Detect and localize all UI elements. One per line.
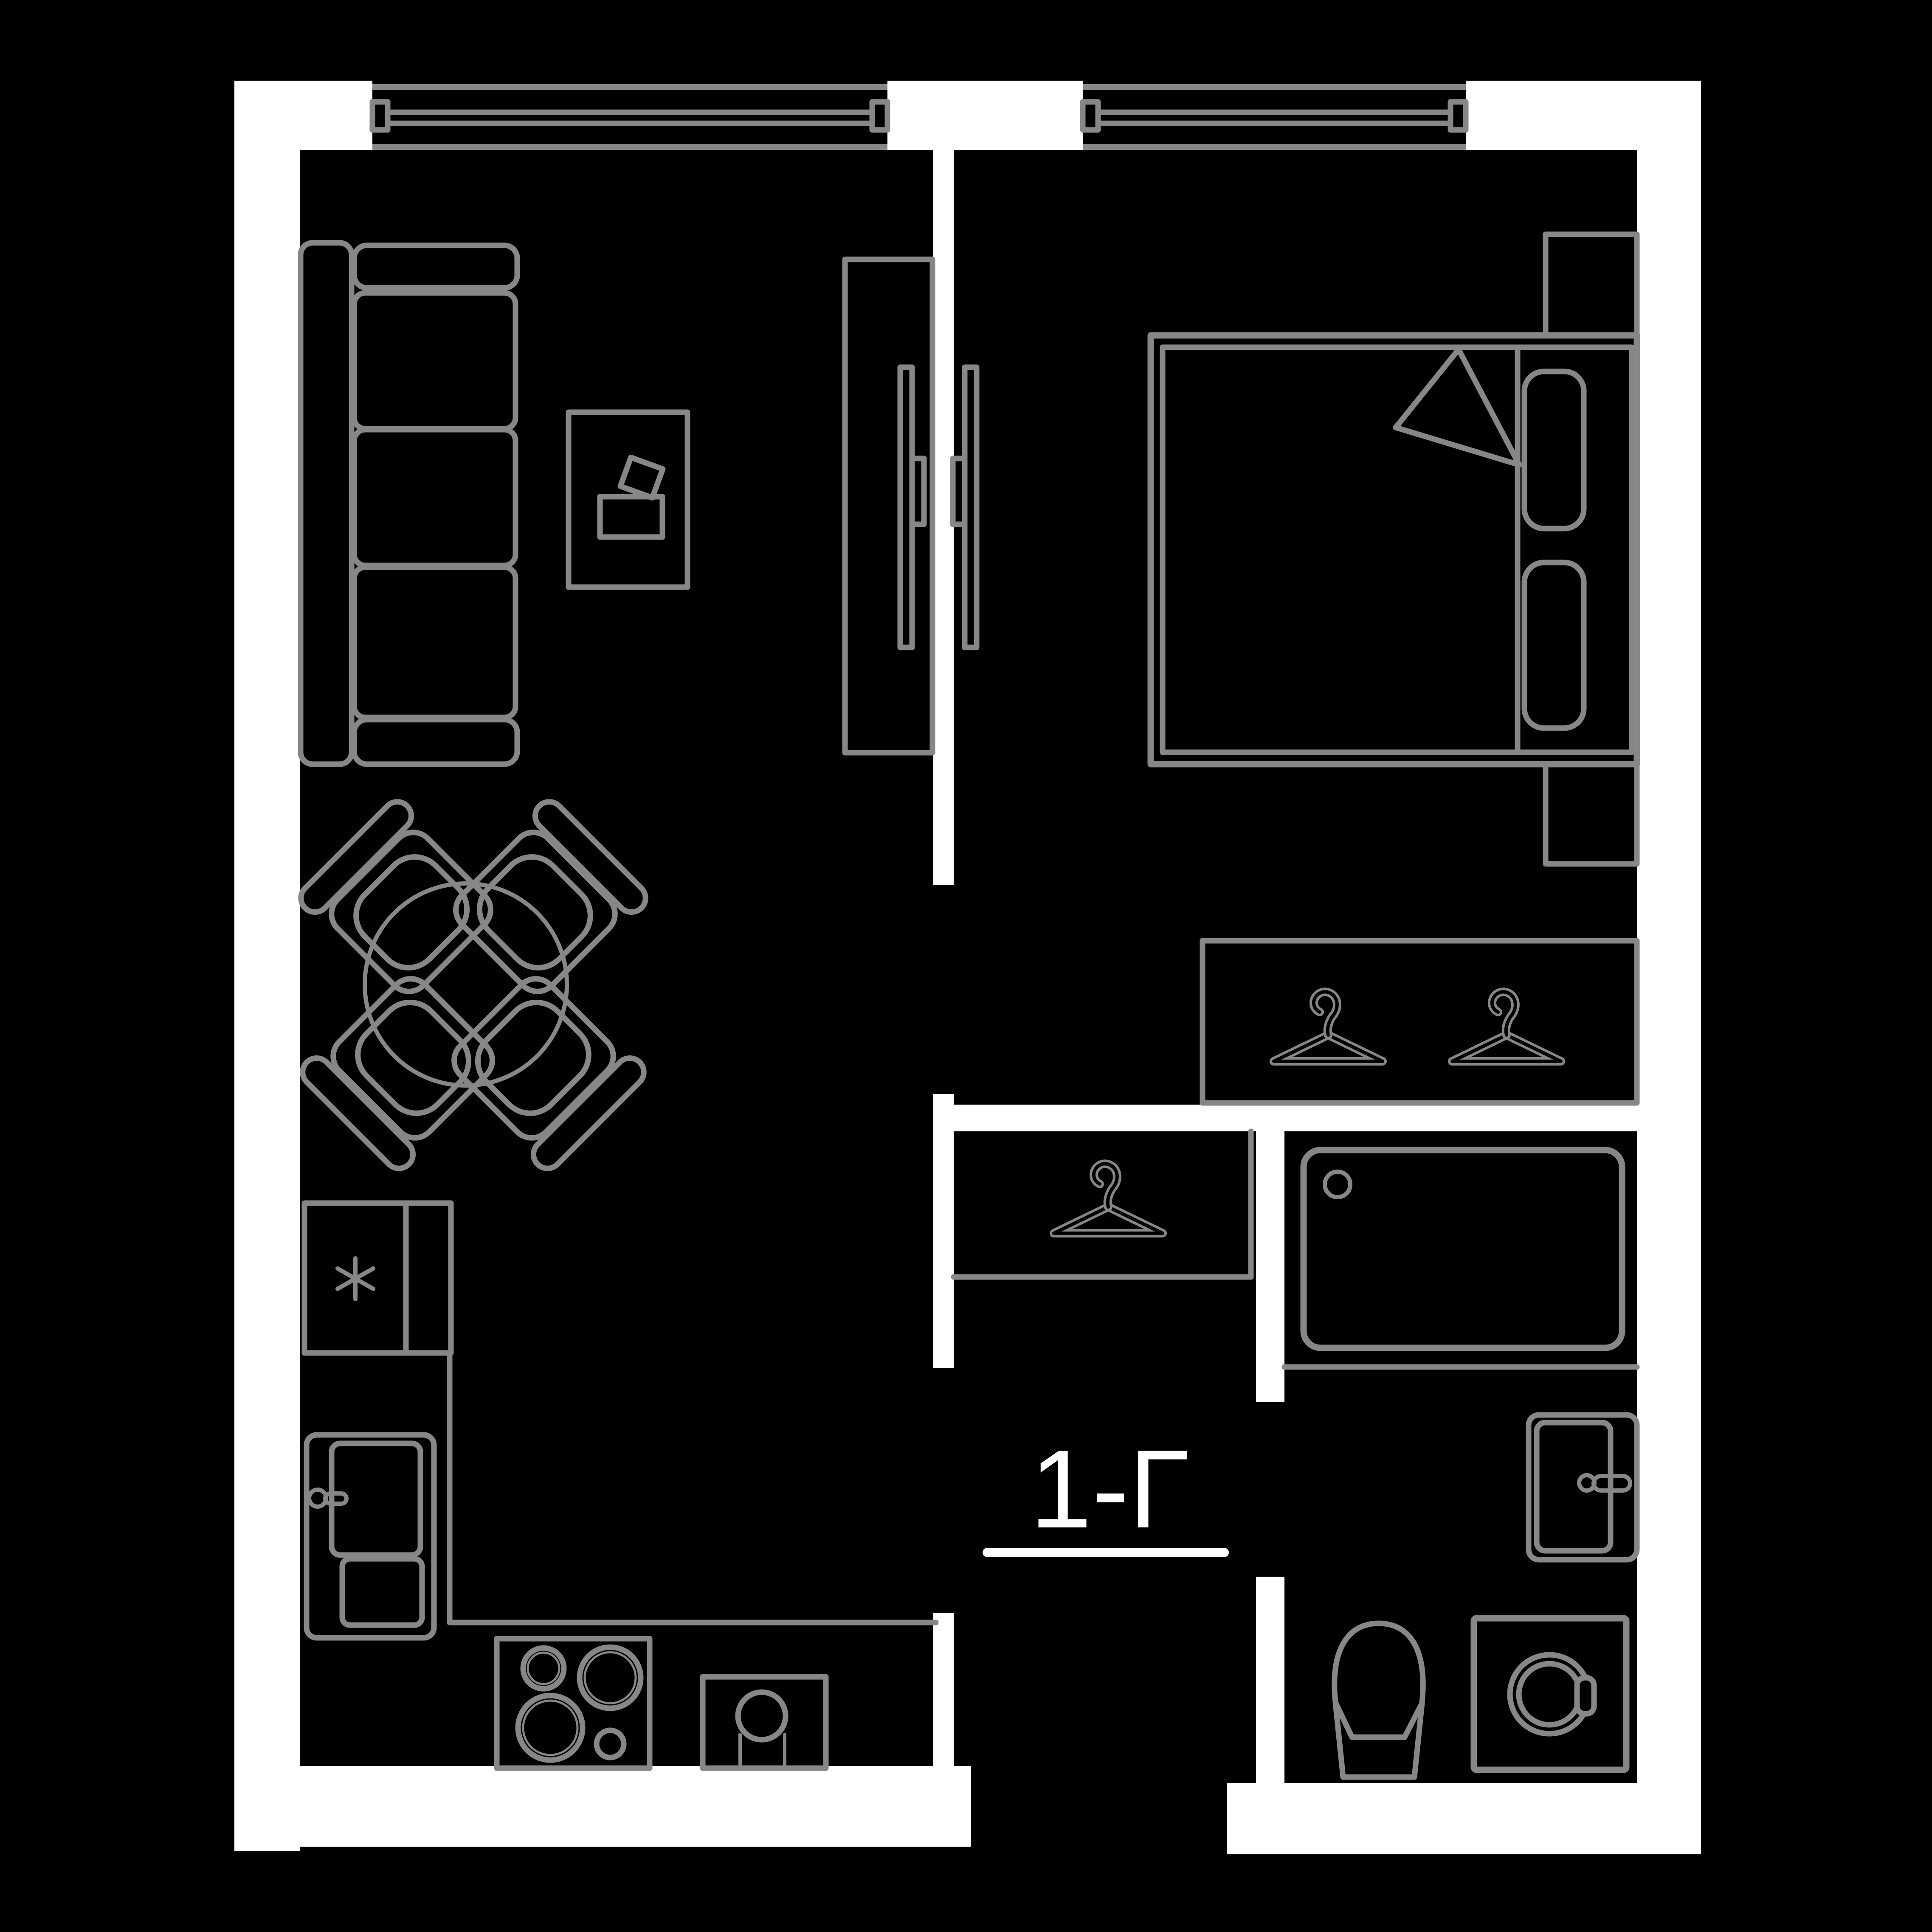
bathtub-drain: [1325, 1172, 1350, 1197]
dining-chair: [442, 796, 651, 1006]
kitchen: [304, 1203, 936, 1768]
wall-right-exterior: [1637, 81, 1701, 1854]
window-end-cap: [1083, 102, 1098, 130]
washbasin-bowl: [1537, 1423, 1611, 1551]
window-end-cap: [872, 102, 887, 130]
faucet-lever: [325, 1493, 346, 1504]
nightstand: [1546, 234, 1637, 335]
wall-bottom-right: [1227, 1783, 1701, 1854]
window-glazing-line: [388, 121, 872, 126]
sofa: [301, 243, 517, 764]
window-end-cap: [372, 102, 388, 130]
unit-label: 1-Г: [1030, 1427, 1189, 1551]
burner: [580, 1647, 641, 1708]
sofa-armrest: [354, 720, 517, 764]
burner: [597, 1730, 624, 1758]
wall-bedroom-hall: [954, 1105, 1637, 1131]
pillow: [1524, 562, 1584, 728]
hanger-icon: [1274, 992, 1383, 1061]
kitchen-sink-unit: [307, 1435, 434, 1638]
pillow: [1524, 371, 1584, 529]
tv-bracket: [912, 458, 924, 524]
table-item-small: [620, 457, 663, 498]
coffee-table: [569, 412, 687, 587]
coffee-table-top: [569, 412, 687, 587]
window-outer-line: [372, 84, 887, 90]
sofa-cushion: [354, 430, 515, 565]
wall-partition-middle: [933, 1094, 954, 1368]
bathroom-fixtures: [1284, 1150, 1637, 1777]
washbasin: [1529, 1415, 1637, 1560]
wall-left-exterior: [234, 81, 300, 1851]
round-sink-bowl: [738, 1692, 786, 1740]
window-bedroom: [1083, 84, 1466, 150]
washing-machine-latch: [1577, 1678, 1594, 1714]
sofa-cushion: [354, 293, 515, 429]
wall-partition-lower: [933, 1613, 954, 1770]
burner: [523, 1648, 564, 1689]
sofa-cushion: [354, 567, 515, 717]
washing-machine: [1474, 1618, 1626, 1770]
wall-bathroom-upper: [1256, 1131, 1284, 1402]
tv-bracket: [953, 458, 965, 524]
toilet: [1335, 1623, 1423, 1777]
dining-chair: [440, 965, 650, 1174]
window-living-room: [372, 84, 887, 150]
washing-machine-drum-inner: [1519, 1664, 1580, 1725]
dining-set: [295, 796, 651, 1174]
tv-console: [845, 259, 932, 753]
window-inner-line: [372, 144, 887, 150]
sink-drainboard: [342, 1559, 422, 1625]
burner-inner: [585, 1652, 636, 1703]
floor-plan: 1-Г: [0, 0, 1932, 1932]
wall-bathroom-lower: [1256, 1577, 1284, 1787]
niche-side-cabinet: [406, 1203, 451, 1353]
window-inner-line: [1083, 144, 1466, 150]
unit-label-group: 1-Г: [983, 1427, 1229, 1557]
burner-inner: [523, 1701, 577, 1755]
bedroom-furniture: [1151, 234, 1637, 1103]
window-glazing-line: [1098, 121, 1450, 126]
dining-chair: [297, 965, 507, 1174]
wardrobe: [1203, 941, 1637, 1103]
hanger-icon: [1054, 1164, 1163, 1233]
bed-outline: [1151, 335, 1637, 764]
asterisk-icon: [338, 1258, 373, 1299]
window-glazing-line: [388, 110, 872, 115]
sink-unit-outline: [307, 1435, 434, 1638]
wall-bottom-left: [234, 1766, 971, 1847]
nightstand: [1546, 764, 1637, 864]
cooktop: [497, 1639, 650, 1768]
blanket-fold: [1396, 349, 1519, 465]
window-end-cap: [1450, 102, 1466, 130]
wardrobe-outline: [1203, 941, 1637, 1103]
burner-inner: [528, 1653, 559, 1684]
dining-chair: [295, 796, 505, 1006]
unit-label-underline: [983, 1548, 1229, 1557]
wall-top-pier-between-windows: [887, 81, 1083, 150]
wall-top-left-corner: [234, 81, 372, 150]
sofa-armrest: [354, 245, 517, 288]
window-glazing-line: [1098, 110, 1450, 115]
round-sink: [703, 1677, 826, 1768]
table-item-large: [600, 497, 662, 537]
hanger-icon: [1452, 992, 1561, 1061]
tv-zone: [845, 259, 977, 753]
hallway-closet: [954, 1131, 1251, 1277]
toilet-seat-line: [1335, 1702, 1422, 1737]
burner: [518, 1696, 583, 1760]
window-outer-line: [1083, 84, 1466, 90]
washing-machine-body: [1474, 1618, 1626, 1770]
toilet-bowl: [1335, 1623, 1423, 1702]
bed-mattress: [1163, 347, 1632, 752]
sofa-back: [301, 243, 352, 764]
